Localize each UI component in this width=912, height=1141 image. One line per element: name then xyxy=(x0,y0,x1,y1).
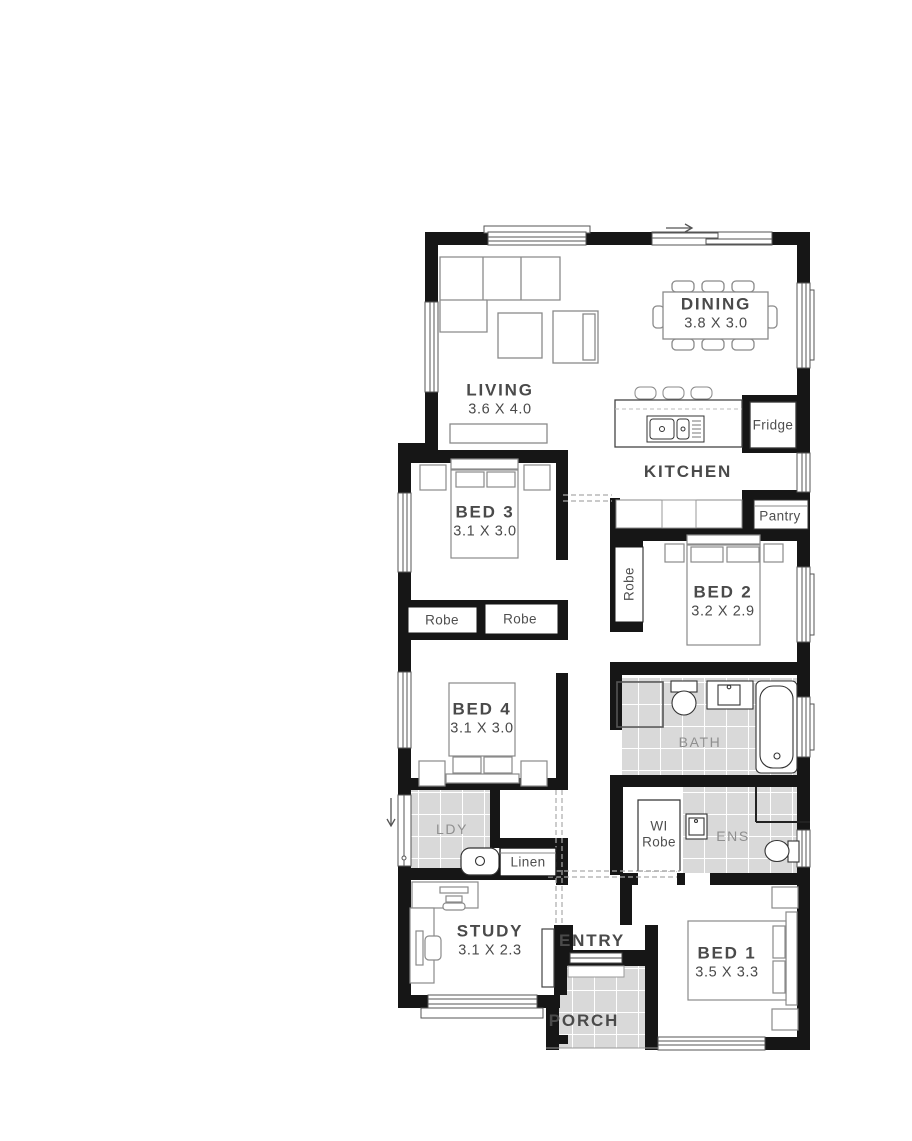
stool xyxy=(691,387,712,399)
pillow xyxy=(453,757,481,773)
dining-chair xyxy=(702,339,724,350)
living-top-window xyxy=(484,226,590,245)
toilet xyxy=(671,681,697,715)
ensuite-vanity xyxy=(686,814,707,839)
bed-headboard xyxy=(451,459,518,469)
robe-cupboard xyxy=(485,604,558,634)
dining-chair xyxy=(672,339,694,350)
bedside-table xyxy=(772,1009,798,1030)
bed-headboard xyxy=(446,774,519,783)
bed2-window xyxy=(797,567,814,642)
bed1-window xyxy=(658,1037,765,1050)
bedside-table xyxy=(764,544,783,562)
bed3-furniture xyxy=(420,459,550,558)
bedside-table xyxy=(665,544,684,562)
dining-sliding-door xyxy=(652,232,772,245)
bed2-robe-cupboard xyxy=(615,547,643,622)
stool xyxy=(663,387,684,399)
dining-chair xyxy=(732,281,754,292)
ottoman xyxy=(498,313,542,358)
kitchen-fixtures xyxy=(615,387,808,529)
dining-table xyxy=(663,292,768,339)
pillow xyxy=(773,961,785,993)
bed4-window xyxy=(398,672,411,748)
bed4-furniture xyxy=(419,683,547,786)
bedside-table xyxy=(419,761,445,786)
bed1-furniture xyxy=(688,887,798,1030)
kitchen-sink xyxy=(647,416,704,442)
bath-window xyxy=(797,697,814,757)
ensuite-toilet xyxy=(765,841,799,863)
bed-headboard xyxy=(786,912,797,1005)
dining-chair xyxy=(672,281,694,292)
walk-in-robe xyxy=(638,800,680,871)
vanity xyxy=(707,681,753,709)
bed3-window xyxy=(398,493,411,572)
floor-plan-drawing xyxy=(0,0,912,1141)
robe-cupboard xyxy=(408,607,477,633)
study-door-leaf xyxy=(542,929,554,987)
bed-headboard xyxy=(687,535,760,544)
pillow xyxy=(456,472,484,487)
office-chair xyxy=(416,931,423,965)
pillow xyxy=(484,757,512,773)
pillow xyxy=(691,547,723,562)
study-furniture xyxy=(410,882,554,987)
living-left-window xyxy=(425,302,438,392)
floor-plan: LIVING 3.6 X 4.0 DINING 3.8 X 3.0 KITCHE… xyxy=(0,0,912,1141)
dining-chair xyxy=(653,306,664,328)
pillow xyxy=(773,926,785,958)
pantry-cupboard xyxy=(754,500,808,529)
living-furniture xyxy=(440,257,598,443)
bedside-table xyxy=(524,465,550,490)
slide-arrow-right-icon xyxy=(666,224,692,232)
entry-step xyxy=(568,966,624,977)
dining-chair xyxy=(732,339,754,350)
bed xyxy=(449,683,515,756)
porch-floor-tiles xyxy=(556,966,645,1048)
fridge-space xyxy=(750,402,796,448)
dining-chair xyxy=(702,281,724,292)
bedside-table xyxy=(772,887,798,908)
laundry-fixtures xyxy=(461,848,556,876)
porch-post xyxy=(559,1035,568,1044)
pillow xyxy=(487,472,515,487)
monitor xyxy=(440,887,468,893)
bed2-furniture xyxy=(665,535,783,645)
pillow xyxy=(727,547,759,562)
bathtub xyxy=(756,681,797,773)
dining-furniture xyxy=(653,281,777,350)
kitchen-right-window xyxy=(797,453,810,492)
slide-arrow-down-icon xyxy=(387,798,395,826)
linen-cupboard xyxy=(500,848,556,876)
bedside-table xyxy=(420,465,446,490)
laundry-sliding-door xyxy=(398,795,411,866)
laundry-tub xyxy=(461,848,499,875)
dining-right-window xyxy=(797,283,814,368)
study-window xyxy=(421,995,543,1018)
stool xyxy=(635,387,656,399)
rug xyxy=(450,424,547,443)
cooktop xyxy=(662,500,696,528)
bed xyxy=(688,921,786,1000)
bedside-table xyxy=(521,761,547,786)
